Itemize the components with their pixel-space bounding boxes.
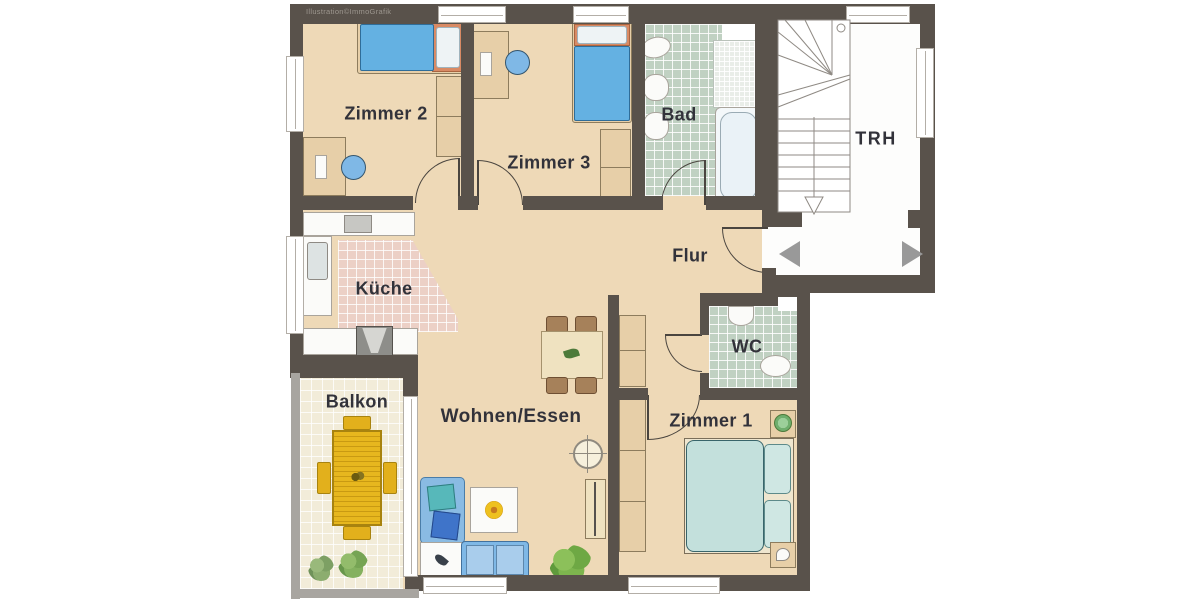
table-decoration	[349, 471, 365, 483]
wall-segment	[700, 306, 709, 335]
dining-chair	[575, 377, 597, 394]
wc-toilet	[760, 355, 791, 377]
cooktop	[344, 215, 372, 233]
floor-plan: Zimmer 2 Zimmer 3 Bad TRH Flur Küche WC …	[0, 0, 1200, 600]
window	[438, 6, 506, 23]
room-label-wc: WC	[732, 337, 763, 358]
kitchen-sink	[307, 242, 328, 280]
wall-segment	[523, 196, 663, 210]
wall-segment	[461, 10, 474, 210]
wardrobe-divider	[620, 501, 645, 502]
balcony-chair-left	[317, 462, 331, 494]
wall-segment	[290, 196, 413, 210]
wall-segment	[615, 388, 648, 400]
balcony-railing	[291, 373, 300, 599]
wardrobe-divider	[601, 167, 630, 168]
staircase	[775, 17, 925, 229]
wall-niche	[722, 24, 758, 40]
desk-paper	[480, 52, 492, 76]
room-label-zimmer2: Zimmer 2	[344, 104, 427, 125]
nightstand-plant	[774, 414, 792, 432]
window	[628, 577, 720, 594]
wall-segment	[290, 355, 418, 378]
door-leaf-zimmer1	[647, 395, 649, 440]
shower-area	[713, 40, 758, 108]
bed-pillow	[764, 500, 791, 548]
balcony-railing	[291, 589, 419, 598]
wardrobe-divider	[620, 450, 645, 451]
balcony-chair-top	[343, 416, 371, 430]
sideboard-handle	[594, 482, 596, 536]
flower-bowl	[485, 501, 503, 519]
balcony-chair-right	[383, 462, 397, 494]
room-label-trh: TRH	[855, 129, 897, 150]
compass-crosshair-h	[569, 453, 607, 454]
door-leaf-wc	[665, 334, 702, 336]
compass-ornament	[573, 439, 603, 469]
compass-crosshair-v	[587, 435, 588, 473]
desk-chair	[505, 50, 530, 75]
bathtub-inner	[720, 112, 757, 200]
room-label-wohnen-essen: Wohnen/Essen	[441, 406, 582, 428]
wall-segment	[632, 10, 645, 210]
bed-pillow	[577, 26, 627, 44]
potted-plant	[338, 550, 368, 578]
room-label-zimmer3: Zimmer 3	[507, 153, 590, 174]
wall-segment	[700, 388, 810, 400]
single-bed	[574, 46, 630, 121]
closet-divider	[620, 350, 645, 351]
desk-chair	[341, 155, 366, 180]
wall-shaft	[778, 297, 797, 311]
wall-segment	[458, 196, 478, 210]
wall-segment	[762, 275, 935, 293]
wardrobe-divider	[437, 116, 462, 117]
potted-plant	[308, 555, 334, 581]
bed-pillow	[764, 444, 791, 494]
wall-segment	[608, 295, 619, 575]
toilet	[643, 74, 669, 101]
room-label-flur: Flur	[672, 246, 708, 267]
wc-sink	[728, 306, 754, 326]
hall-closet	[619, 315, 646, 387]
door-leaf-entrance	[722, 227, 768, 229]
room-label-balkon: Balkon	[326, 392, 388, 413]
room-label-kueche: Küche	[355, 279, 412, 300]
balcony-chair-bottom	[343, 526, 371, 540]
window	[286, 236, 304, 334]
armchair-pillow-blue	[430, 510, 460, 540]
wall-segment	[762, 268, 776, 293]
balcony-door-window	[403, 396, 418, 577]
dining-chair	[546, 377, 568, 394]
direction-arrow-right-icon	[902, 241, 923, 267]
desk-paper	[315, 155, 327, 179]
nightstand-clock	[776, 548, 790, 561]
armchair-pillow-teal	[427, 484, 456, 512]
direction-arrow-left-icon	[779, 241, 800, 267]
sofa-cushion	[496, 545, 524, 575]
double-bed-duvet	[686, 440, 764, 552]
wall-segment	[700, 373, 709, 388]
sofa-cushion	[466, 545, 494, 575]
room-label-zimmer1: Zimmer 1	[669, 411, 752, 432]
wardrobe	[619, 399, 646, 552]
watermark: Illustration©ImmoGrafik	[306, 7, 391, 16]
window	[423, 577, 507, 594]
window	[286, 56, 304, 132]
single-bed	[360, 24, 434, 71]
wall-segment	[706, 196, 776, 210]
bed-pillow	[436, 27, 460, 68]
wall-segment	[797, 293, 810, 590]
room-label-bad: Bad	[661, 105, 696, 126]
window	[573, 6, 629, 23]
